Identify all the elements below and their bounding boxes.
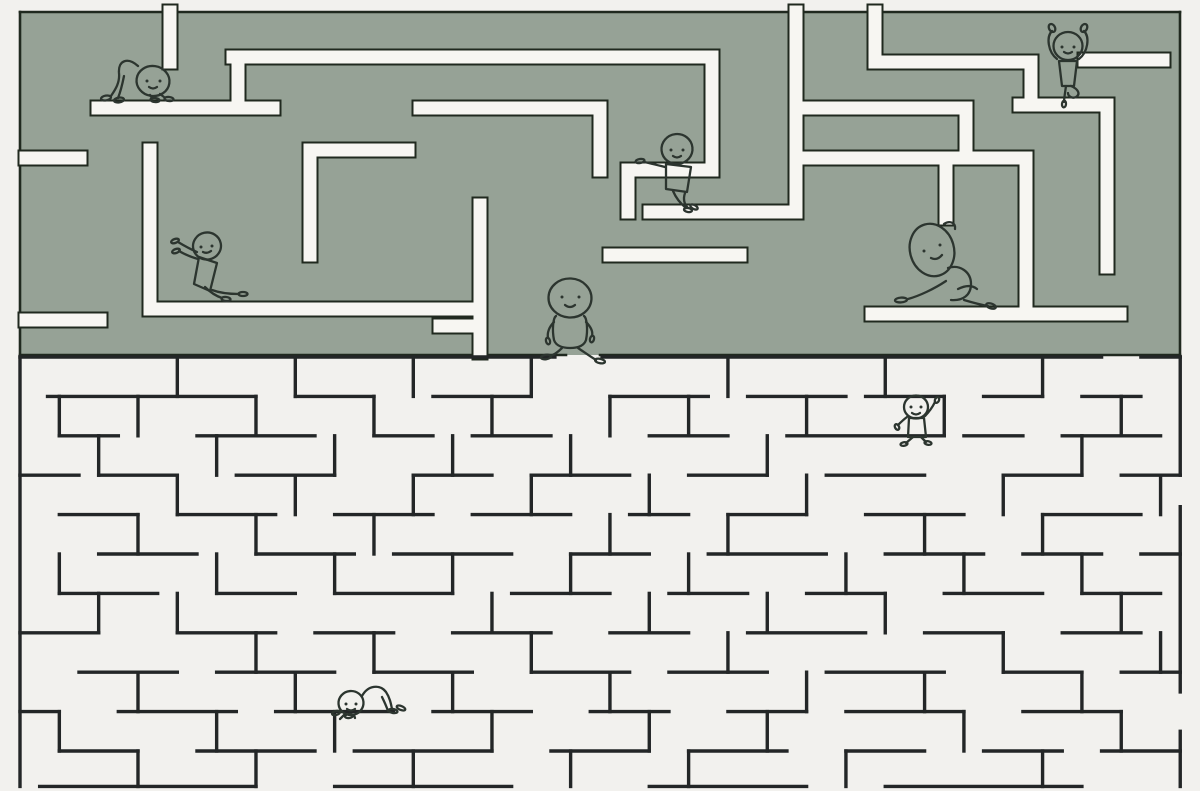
character-waver — [894, 396, 940, 447]
maze-illustration — [0, 0, 1200, 791]
top-maze — [20, 12, 1180, 355]
maze-canvas — [0, 0, 1200, 791]
character-crawler-bottom — [332, 687, 406, 719]
bottom-maze — [20, 357, 1180, 786]
